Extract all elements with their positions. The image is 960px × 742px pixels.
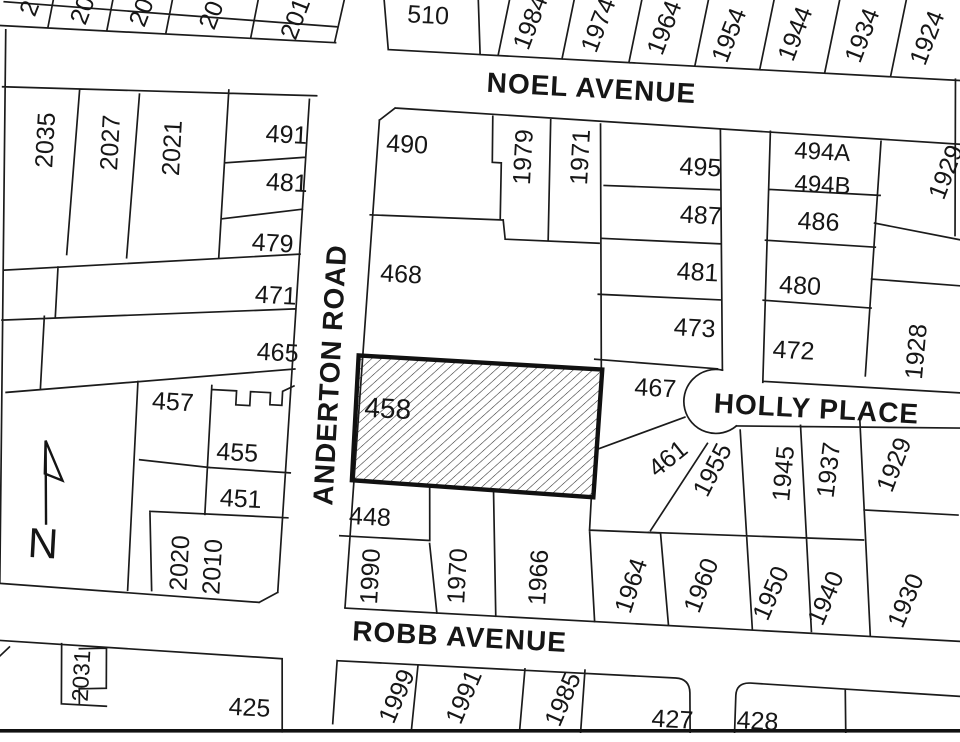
lot-number-2027: 2027 [95,114,126,171]
lot-number-455: 455 [216,438,259,468]
parcel-map-canvas: N 22020202015101984197419641954194419341… [0,0,960,742]
lot-number-486: 486 [797,207,840,237]
lot-number-1979: 1979 [508,129,539,186]
lot-number-473: 473 [673,313,716,343]
lot-number-1970: 1970 [442,548,473,605]
lot-number-467: 467 [634,373,677,403]
lot-number-2010: 2010 [197,538,228,595]
lot-number-491: 491 [265,120,308,150]
lot-number-1928: 1928 [900,323,933,381]
lot-number-451: 451 [219,484,262,514]
lot-number-2020: 2020 [164,535,195,592]
lot-number-425: 425 [228,693,271,723]
lot-number-468: 468 [380,259,423,289]
lot-number-494a: 494A [794,137,851,167]
lot-number-457: 457 [151,387,194,417]
subject-lot-number-458: 458 [364,392,412,425]
lot-number-480: 480 [778,271,821,301]
parcel-map: N 22020202015101984197419641954194419341… [0,0,960,742]
lot-number-481: 481 [676,257,719,287]
lot-number-1945: 1945 [767,445,800,503]
north-arrow-letter: N [27,519,60,568]
lot-number-494b: 494B [794,170,851,200]
lot-number-465: 465 [256,338,299,368]
lot-number-481: 481 [265,168,308,198]
lot-number-2035: 2035 [30,112,61,169]
lot-number-2021: 2021 [157,120,188,177]
lot-number-490: 490 [386,129,429,159]
lot-number-1971: 1971 [565,129,596,186]
lot-number-1966: 1966 [523,549,554,606]
lot-number-448: 448 [348,502,391,532]
lot-number-471: 471 [254,280,297,310]
lot-number-510: 510 [407,0,450,30]
subject-parcel-458-highlight[interactable] [352,355,603,497]
map-bottom-border [0,729,960,733]
lot-number-1990: 1990 [355,548,386,605]
lot-number-487: 487 [679,200,722,230]
lot-number-479: 479 [251,228,294,258]
lot-number-2031: 2031 [67,650,96,703]
lot-number-495: 495 [679,152,722,182]
bottom-margin [0,733,960,742]
lot-number-472: 472 [772,336,815,366]
